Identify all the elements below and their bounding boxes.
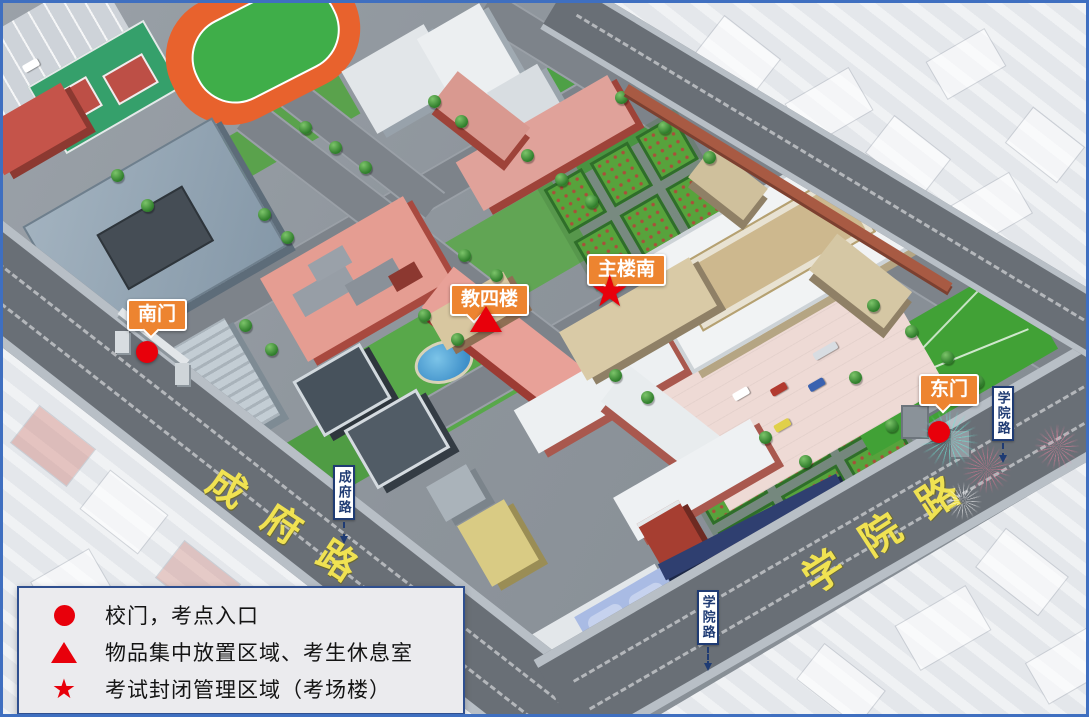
tree-icon: [451, 333, 464, 346]
tree-icon: [585, 195, 598, 208]
tree-icon: [759, 431, 772, 444]
tree-icon: [111, 169, 124, 182]
legend-text: 校门，考点入口: [105, 600, 259, 630]
car: [732, 386, 751, 401]
car: [807, 377, 826, 392]
tree-icon: [941, 351, 954, 364]
tree-icon: [141, 199, 154, 212]
firework-decoration: [1033, 423, 1081, 471]
tree-icon: [239, 319, 252, 332]
street-sign-arrow: [1002, 443, 1004, 459]
street-sign-xueyuan-east: 学院路: [992, 386, 1014, 441]
legend-circle-icon: [47, 605, 81, 626]
court: [102, 53, 159, 105]
car: [773, 418, 792, 433]
legend-row-gate: 校门，考点入口: [47, 598, 455, 632]
street-sign-chengfu: 成府路: [333, 465, 355, 520]
tree-icon: [799, 455, 812, 468]
car: [770, 382, 789, 397]
firework-decoration: [943, 481, 983, 521]
tree-icon: [265, 343, 278, 356]
legend-star-icon: ★: [47, 676, 81, 703]
tree-icon: [359, 161, 372, 174]
marker-triangle-teaching4: [470, 306, 502, 332]
car: [22, 58, 41, 73]
south-gate-pillar: [115, 331, 129, 353]
legend-text: 物品集中放置区域、考生休息室: [105, 637, 413, 667]
legend-row-exam: ★ 考试封闭管理区域（考场楼）: [47, 672, 455, 706]
courtyard: [96, 185, 214, 290]
tree-icon: [905, 325, 918, 338]
street-sign-xueyuan-south: 学院路: [697, 590, 719, 645]
marker-gate-east: [928, 421, 950, 443]
legend-row-storage: 物品集中放置区域、考生休息室: [47, 635, 455, 669]
legend-triangle-icon: [47, 642, 81, 663]
tree-icon: [658, 121, 671, 134]
tree-icon: [258, 208, 271, 221]
tree-icon: [849, 371, 862, 384]
building-yellow: [457, 499, 539, 587]
tree-icon: [329, 141, 342, 154]
tree-icon: [641, 391, 654, 404]
tree-icon: [867, 299, 880, 312]
tree-icon: [703, 151, 716, 164]
label-east-gate: 东门: [919, 374, 979, 406]
street-sign-arrow: [707, 647, 709, 667]
tree-icon: [418, 309, 431, 322]
south-gate-pillar: [175, 363, 189, 385]
tree-icon: [428, 95, 441, 108]
label-south-gate: 南门: [127, 299, 187, 331]
legend-text: 考试封闭管理区域（考场楼）: [105, 674, 391, 704]
campus-map: 成府路 学院路 成府路 学院路 学院路 南门 教四楼 主楼南 东门 ★ 校门，考…: [0, 0, 1089, 717]
tree-icon: [555, 173, 568, 186]
tree-icon: [885, 419, 898, 432]
tree-icon: [609, 369, 622, 382]
tree-icon: [490, 269, 503, 282]
marker-star-main-south: ★: [590, 270, 629, 314]
tree-icon: [299, 121, 312, 134]
tree-icon: [455, 115, 468, 128]
street-sign-arrow: [343, 522, 345, 540]
bus: [812, 341, 839, 361]
tree-icon: [281, 231, 294, 244]
tree-icon: [521, 149, 534, 162]
map-legend: 校门，考点入口 物品集中放置区域、考生休息室 ★ 考试封闭管理区域（考场楼）: [17, 586, 465, 715]
tree-icon: [458, 249, 471, 262]
marker-gate-south: [136, 341, 158, 363]
